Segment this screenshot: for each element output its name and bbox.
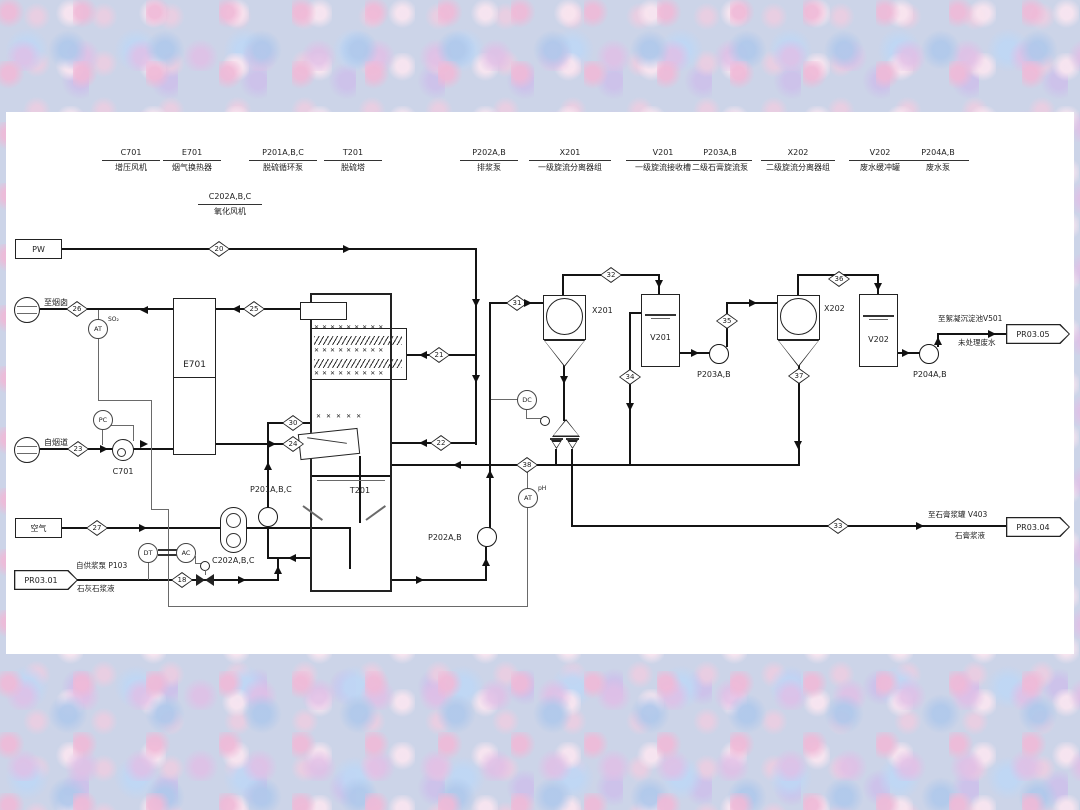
index-c701: C701增压风机 (96, 148, 166, 173)
stream-tag-36: 36 (828, 271, 850, 287)
distributor-actuator-icon (540, 416, 550, 426)
stream-tag-30: 30 (282, 415, 304, 431)
pr03-01-note-top: 自供浆泵 P103 (76, 562, 127, 570)
air-source-box: 空气 (15, 518, 62, 538)
p201-label: P201A,B,C (250, 485, 292, 494)
pw-source-box: PW (15, 239, 62, 259)
tank-v201: V201 (641, 294, 680, 367)
stack-connection-icon (14, 297, 40, 323)
pressure-controller-pc: PC (93, 410, 113, 430)
stream-tag-20: 20 (208, 241, 230, 257)
packing-band-1 (314, 336, 402, 345)
oxidation-blower-c202 (220, 507, 247, 553)
stream-tag-35: 35 (716, 313, 738, 329)
pump-p202 (477, 527, 497, 547)
stream-tag-38: 38 (516, 457, 538, 473)
analyzer-so2: AT SO₂ (88, 319, 108, 339)
t201-label: T201 (334, 486, 386, 495)
stream-tag-37: 37 (788, 368, 810, 384)
pr03-04-note-bottom: 石膏浆液 (955, 532, 985, 540)
analyzer-ph: AT pH (518, 488, 538, 508)
stream-tag-31: 31 (506, 295, 528, 311)
offpage-pr03-01: PR03.01 (14, 570, 78, 590)
offpage-pr03-04: PR03.04 (1006, 517, 1070, 537)
c202-label: C202A,B,C (212, 556, 255, 565)
stream-tag-23: 23 (67, 441, 89, 457)
pump-p204 (919, 344, 939, 364)
density-controller-dc: DC (517, 390, 537, 410)
index-p203: P203A,B二级石膏旋流泵 (682, 148, 758, 173)
fgd-process-flow-diagram: C701增压风机 E701烟气换热器 P201A,B,C脱硫循环泵 T201脱硫… (0, 0, 1080, 810)
from-flue-label: 自烟道 (44, 438, 68, 447)
stream-tag-32: 32 (600, 267, 622, 283)
booster-fan-c701 (112, 439, 134, 461)
e701-label: E701 (174, 361, 215, 370)
x201-label: X201 (592, 306, 613, 315)
index-x202: X202二级旋流分离器组 (755, 148, 841, 173)
index-t201: T201脱硫塔 (318, 148, 388, 173)
pump-p203 (709, 344, 729, 364)
heat-exchanger-e701: E701 (173, 298, 216, 455)
pr03-05-note-top: 至絮凝沉淀池V501 (938, 315, 1002, 323)
stream-tag-21: 21 (428, 347, 450, 363)
stream-tag-27: 27 (86, 520, 108, 536)
x202-label: X202 (824, 304, 845, 313)
v202-label: V202 (860, 335, 897, 344)
tower-liquid-level (312, 475, 390, 477)
density-transmitter-dt: DT (138, 543, 158, 563)
stream-tag-25: 25 (243, 301, 265, 317)
stream-tag-22: 22 (430, 435, 452, 451)
p204-label: P204A,B (913, 370, 947, 379)
drawing-sheet (6, 112, 1074, 654)
index-x201: X201一级旋流分离器组 (523, 148, 617, 173)
tower-outlet-duct (300, 302, 347, 320)
stream-tag-34: 34 (619, 369, 641, 385)
packing-band-2 (314, 359, 402, 368)
flue-connection-icon (14, 437, 40, 463)
v201-label: V201 (642, 333, 679, 342)
index-p201: P201A,B,C脱硫循环泵 (243, 148, 323, 173)
stream-tag-26: 26 (66, 301, 88, 317)
p202-label: P202A,B (428, 533, 462, 542)
pump-p201 (258, 507, 278, 527)
index-e701: E701烟气换热器 (157, 148, 227, 173)
stream-tag-33: 33 (827, 518, 849, 534)
c701-label: C701 (103, 467, 143, 476)
spray-header: ✕✕✕✕✕ (316, 413, 386, 420)
offpage-pr03-05: PR03.05 (1006, 324, 1070, 344)
pr03-04-note-top: 至石膏浆罐 V403 (928, 511, 987, 519)
distributor (552, 419, 580, 437)
tank-v202: V202 (859, 294, 898, 367)
index-p204: P204A,B废水泵 (901, 148, 975, 173)
analysis-controller-ac: AC (176, 543, 196, 563)
pr03-01-note-bottom: 石灰石浆液 (77, 585, 115, 593)
stream-tag-24: 24 (282, 436, 304, 452)
p203-label: P203A,B (697, 370, 731, 379)
stream-tag-18: 18 (171, 572, 193, 588)
index-c202: C202A,B,C氧化风机 (192, 192, 268, 217)
pr03-05-note-bottom: 未处理废水 (958, 339, 996, 347)
index-p202: P202A,B排浆泵 (454, 148, 524, 173)
to-stack-label: 至烟囱 (44, 298, 68, 307)
